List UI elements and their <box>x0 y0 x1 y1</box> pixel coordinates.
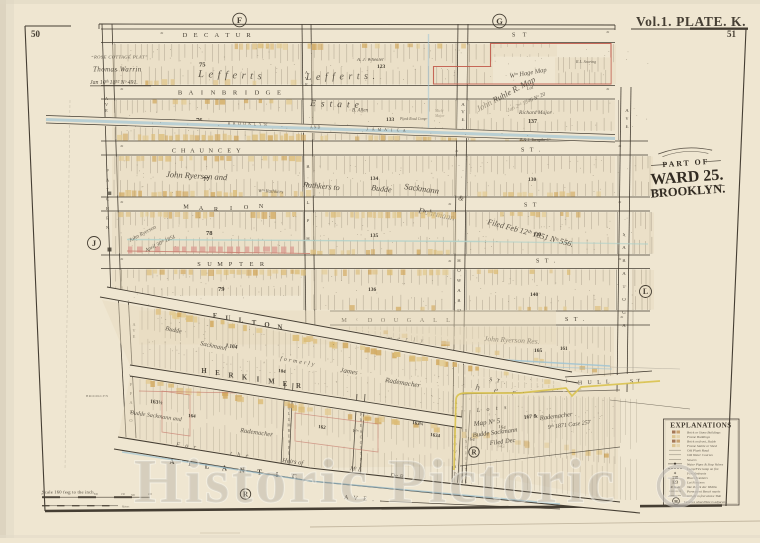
svg-text:L: L <box>239 318 244 325</box>
svg-text:161: 161 <box>560 347 568 352</box>
svg-text:S: S <box>360 430 362 434</box>
svg-text:164: 164 <box>188 414 196 420</box>
svg-text:130: 130 <box>528 177 537 183</box>
svg-text:N: N <box>278 325 283 332</box>
svg-text:B. Allen: B. Allen <box>352 109 369 114</box>
svg-text:G: G <box>266 90 271 97</box>
svg-text:U: U <box>288 418 291 422</box>
svg-text:L: L <box>307 201 310 206</box>
svg-text:51: 51 <box>727 29 737 39</box>
svg-text:Y: Y <box>259 123 262 127</box>
svg-text:S: S <box>288 440 290 444</box>
svg-text:D: D <box>255 90 260 97</box>
svg-text:Old Water Courses: Old Water Courses <box>687 453 714 457</box>
svg-text:“ROSE COTTAGE PLAT”: “ROSE COTTAGE PLAT” <box>91 55 148 60</box>
svg-text:E: E <box>227 148 231 155</box>
svg-text:Sewers: Sewers <box>687 458 697 462</box>
svg-text:137: 137 <box>528 119 537 125</box>
svg-text:F: F <box>213 313 217 320</box>
svg-text:G: G <box>622 311 626 316</box>
svg-text:W: W <box>457 279 462 284</box>
svg-text:S T: S T <box>524 203 538 209</box>
svg-text:49: 49 <box>618 200 622 204</box>
svg-text:B: B <box>222 90 227 97</box>
svg-text:Water Pipes & Stop Valves: Water Pipes & Stop Valves <box>687 462 724 466</box>
svg-text:140: 140 <box>530 292 539 298</box>
svg-text:Jan 10ᵗʰ 18⁵² Nᵒ 491.: Jan 10ᵗʰ 18⁵² Nᵒ 491. <box>90 79 138 86</box>
svg-text:49: 49 <box>120 200 124 204</box>
svg-text:Lefferts.: Lefferts. <box>305 71 380 83</box>
svg-text:Vol.1. PLATE. K.: Vol.1. PLATE. K. <box>636 14 746 29</box>
svg-text:A: A <box>214 32 219 39</box>
svg-text:O: O <box>264 322 269 329</box>
svg-text:133: 133 <box>386 117 395 123</box>
svg-text:N: N <box>259 203 264 210</box>
svg-text:79: 79 <box>218 286 225 293</box>
svg-text:A: A <box>190 148 195 155</box>
svg-text:50: 50 <box>31 29 41 39</box>
svg-text:T: T <box>225 32 229 39</box>
svg-text:H: H <box>201 368 207 375</box>
svg-text:O: O <box>622 298 626 303</box>
svg-text:O: O <box>244 204 249 211</box>
svg-text:M: M <box>378 128 382 132</box>
svg-text:K: K <box>248 122 251 126</box>
svg-text:163½: 163½ <box>150 398 163 406</box>
svg-text:Permanent Bench marks: Permanent Bench marks <box>686 490 721 494</box>
svg-text:A: A <box>622 272 626 277</box>
svg-text:C: C <box>204 32 208 39</box>
svg-text:77: 77 <box>203 176 210 183</box>
svg-text:Y: Y <box>236 148 241 155</box>
svg-text:Richard Major: Richard Major <box>518 110 552 116</box>
svg-text:S: S <box>623 233 626 238</box>
svg-text:49: 49 <box>606 87 610 91</box>
svg-text:A: A <box>384 128 387 132</box>
svg-text:O: O <box>457 269 461 274</box>
svg-text:C: C <box>218 148 222 155</box>
svg-text:I: I <box>257 377 260 384</box>
svg-text:T: T <box>239 261 243 268</box>
svg-text:K: K <box>242 374 248 381</box>
svg-text:F: F <box>237 15 242 25</box>
svg-text:75: 75 <box>199 62 206 69</box>
svg-text:123: 123 <box>377 64 386 70</box>
svg-text:H: H <box>306 237 310 242</box>
svg-text:49: 49 <box>606 30 610 34</box>
svg-text:R: R <box>296 383 301 390</box>
svg-text:Thomas Warrin: Thomas Warrin <box>93 66 142 74</box>
svg-text:E: E <box>194 32 198 39</box>
svg-text:O: O <box>243 122 246 126</box>
svg-text:I: I <box>201 90 203 97</box>
svg-text:49: 49 <box>120 87 124 91</box>
svg-text:U: U <box>288 435 291 439</box>
svg-text:M: M <box>268 379 275 386</box>
svg-text:A: A <box>403 129 406 133</box>
svg-text:V: V <box>461 111 465 116</box>
svg-text:R: R <box>229 372 234 379</box>
svg-text:G: G <box>496 16 503 26</box>
svg-text:Historic Pictoric: Historic Pictoric <box>134 448 617 516</box>
svg-text:A: A <box>625 109 629 114</box>
svg-text:E: E <box>462 118 465 123</box>
svg-text:D: D <box>183 32 188 39</box>
svg-text:N: N <box>264 123 267 127</box>
svg-text:U: U <box>236 32 241 39</box>
svg-text:49: 49 <box>455 149 459 153</box>
svg-text:Metres: Metres <box>122 506 129 509</box>
svg-text:B: B <box>178 90 183 97</box>
svg-text:C: C <box>106 197 109 202</box>
svg-text:U: U <box>207 261 212 268</box>
svg-text:A: A <box>457 289 461 294</box>
svg-text:49: 49 <box>120 257 124 261</box>
svg-text:A. J. Wheeler: A. J. Wheeler <box>356 58 384 63</box>
svg-text:BROOKLYN: BROOKLYN <box>86 394 109 398</box>
svg-text:49: 49 <box>448 259 452 263</box>
svg-text:78: 78 <box>206 230 213 237</box>
svg-text:R: R <box>233 90 238 97</box>
svg-text:B: B <box>228 122 231 126</box>
svg-text:135: 135 <box>370 233 379 239</box>
svg-text:V: V <box>625 117 629 122</box>
svg-text:L: L <box>643 287 648 296</box>
svg-text:S T .: S T . <box>536 259 557 265</box>
svg-text:C: C <box>397 129 400 133</box>
svg-text:U: U <box>199 148 204 155</box>
svg-text:P: P <box>229 261 233 268</box>
svg-text:165: 165 <box>534 348 543 354</box>
svg-text:A: A <box>622 246 626 251</box>
svg-text:E: E <box>277 90 281 97</box>
svg-text:E: E <box>626 125 629 130</box>
svg-text:T: T <box>252 320 257 327</box>
svg-text:O: O <box>360 441 363 445</box>
svg-text:R: R <box>667 471 689 504</box>
svg-text:M: M <box>183 204 189 211</box>
svg-text:E: E <box>105 108 108 113</box>
svg-text:S T .: S T . <box>521 148 542 154</box>
svg-text:C: C <box>172 148 176 155</box>
svg-text:49: 49 <box>160 31 164 35</box>
svg-text:T: T <box>106 187 109 192</box>
svg-text:A: A <box>199 205 204 212</box>
svg-text:Old Plank Road: Old Plank Road <box>687 449 709 453</box>
svg-text:M: M <box>217 261 223 268</box>
svg-text:Brick or Stone Buildings: Brick or Stone Buildings <box>687 431 721 435</box>
svg-text:S T .: S T . <box>565 317 586 323</box>
svg-text:L: L <box>288 412 290 416</box>
svg-text:U: U <box>226 315 231 322</box>
svg-text:136: 136 <box>368 287 377 293</box>
svg-text:A: A <box>622 324 626 329</box>
svg-text:E: E <box>106 216 109 221</box>
svg-text:AND: AND <box>310 126 321 130</box>
svg-text:S T: S T <box>512 33 529 39</box>
svg-text:A: A <box>461 103 465 108</box>
svg-text:I: I <box>245 90 247 97</box>
svg-text:H: H <box>457 259 461 264</box>
svg-text:T: T <box>623 285 626 290</box>
svg-text:49: 49 <box>120 144 124 148</box>
svg-text:Frame Buildings: Frame Buildings <box>686 435 711 439</box>
svg-text:R: R <box>233 122 236 126</box>
svg-text:E: E <box>215 370 220 377</box>
svg-text:Frame Stable or Shed: Frame Stable or Shed <box>686 444 717 448</box>
svg-text:R: R <box>246 32 251 39</box>
svg-text:A: A <box>189 90 194 97</box>
svg-text:49: 49 <box>618 144 622 148</box>
svg-text:134: 134 <box>370 176 379 182</box>
svg-text:P: P <box>307 219 310 224</box>
svg-text:P: P <box>360 413 362 417</box>
svg-text:S: S <box>197 261 201 268</box>
svg-text:B.& J. Turnpike Cᵒ: B.& J. Turnpike Cᵒ <box>520 137 551 142</box>
svg-text:EXPLANATIONS: EXPLANATIONS <box>670 422 731 430</box>
svg-text:O: O <box>238 122 241 126</box>
svg-text:R.L. Searing: R.L. Searing <box>575 59 596 64</box>
svg-text:49: 49 <box>448 202 452 206</box>
svg-text:I: I <box>230 205 232 212</box>
svg-text:N: N <box>211 90 216 97</box>
svg-text:A: A <box>372 128 375 132</box>
svg-text:like the. & dec Widths: like the. & dec Widths <box>687 485 718 489</box>
svg-text:H: H <box>181 148 186 155</box>
svg-text:N: N <box>209 148 214 155</box>
svg-text:49: 49 <box>618 257 622 261</box>
svg-text:E: E <box>250 261 254 268</box>
svg-text:E: E <box>283 381 288 388</box>
